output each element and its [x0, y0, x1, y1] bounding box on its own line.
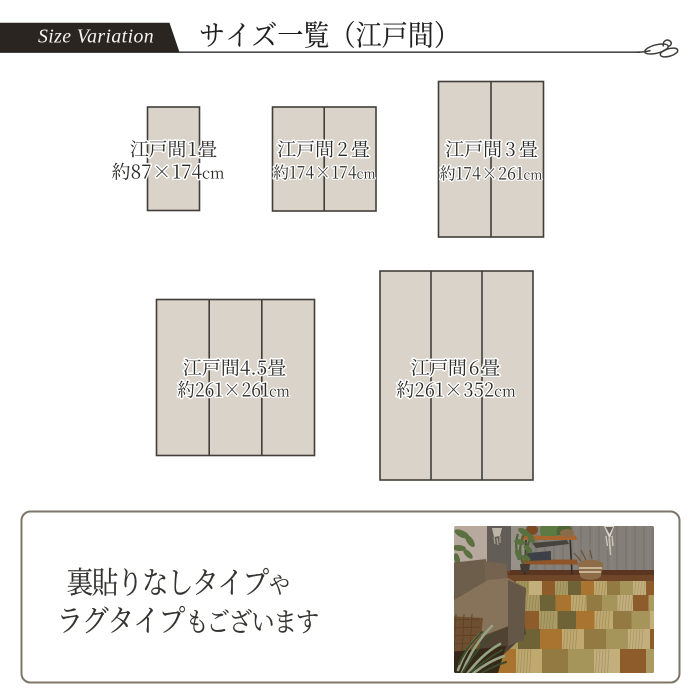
svg-text:Size Variation: Size Variation [38, 26, 154, 48]
